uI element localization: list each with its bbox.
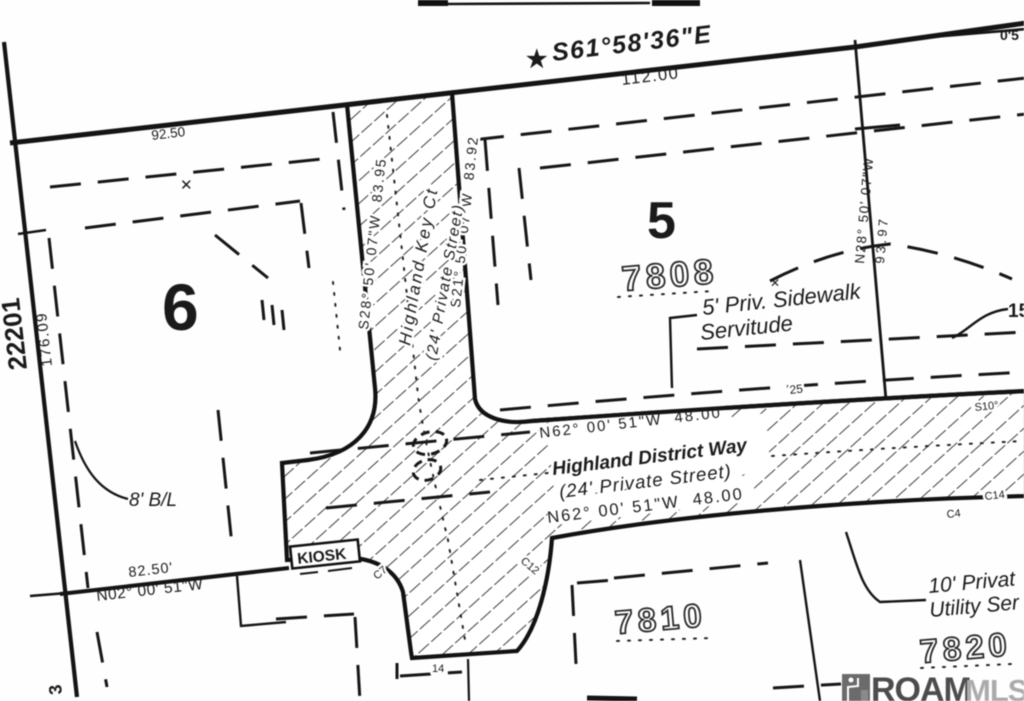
svg-text:✕: ✕: [770, 276, 780, 290]
svg-text:6: 6: [162, 270, 199, 344]
svg-text:✕: ✕: [180, 177, 193, 194]
svg-text:14: 14: [432, 663, 444, 675]
svg-text:25: 25: [789, 382, 804, 397]
svg-text:C4: C4: [946, 508, 961, 521]
svg-text:C14: C14: [984, 489, 1005, 503]
svg-text:15: 15: [1008, 301, 1024, 322]
svg-text:★: ★: [526, 46, 548, 73]
svg-text:0'5: 0'5: [1000, 27, 1019, 43]
svg-text:S10°: S10°: [974, 400, 999, 414]
svg-text:8' B/L: 8' B/L: [129, 490, 177, 511]
svg-text:7808: 7808: [620, 252, 719, 299]
svg-text:MLS: MLS: [965, 673, 1024, 701]
svg-text:5: 5: [647, 192, 676, 250]
svg-text:ROAM: ROAM: [871, 671, 971, 701]
